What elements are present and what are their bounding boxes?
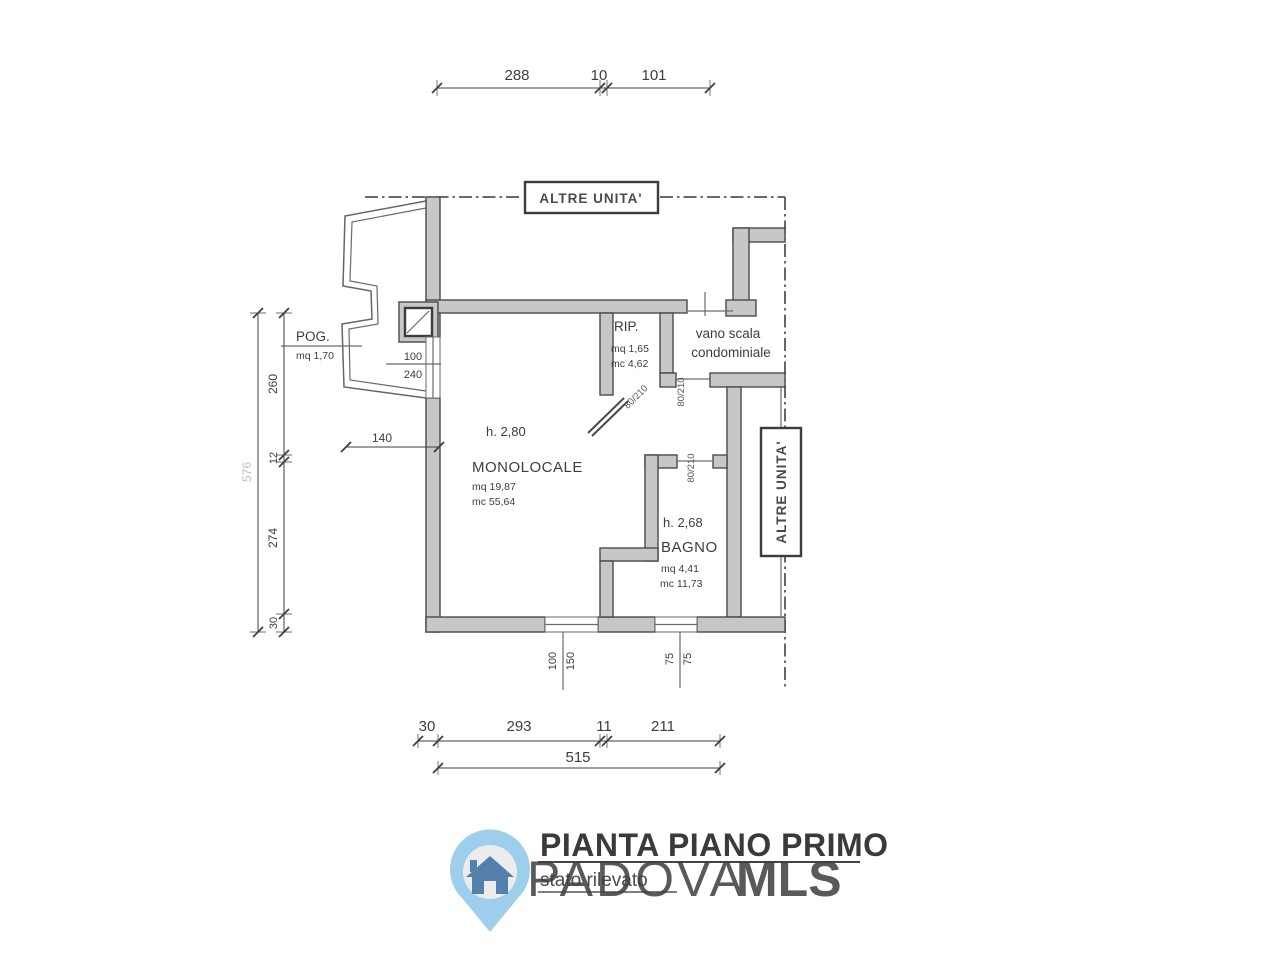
dim-left-12: 12 (268, 452, 280, 464)
dim-bottom-515: 515 (565, 749, 590, 766)
bagno-area: mq 4,41 (661, 563, 699, 575)
dim-bottom-293: 293 (506, 718, 531, 735)
dim-bottom-11: 11 (596, 718, 612, 735)
rip-door-size: 80/210 (622, 383, 650, 411)
dim-left-260: 260 (266, 374, 280, 394)
window-left-100-240 (426, 337, 440, 398)
room-vano-scala-labels: vano scala condominiale (691, 326, 771, 360)
bagno-name: BAGNO (661, 539, 718, 556)
altre-unita-top-label: ALTRE UNITA' (539, 191, 642, 206)
rip-name: RIP. (614, 319, 639, 334)
room-monolocale-labels: h. 2,80 MONOLOCALE mq 19,87 mc 55,64 (472, 424, 583, 508)
watermark-brand-light: PADOVA (527, 851, 746, 907)
entrance-door-size: 80/210 (676, 377, 687, 406)
monolocale-name: MONOLOCALE (472, 459, 583, 476)
bagno-height: h. 2,68 (663, 515, 703, 530)
window-left-width: 100 (404, 351, 422, 363)
room-rip-labels: RIP. mq 1,65 mc 4,62 (611, 319, 649, 370)
pog-area: mq 1,70 (296, 350, 334, 362)
dim-left-30: 30 (268, 617, 280, 629)
watermark-brand-bold: MLS (736, 851, 842, 907)
dim-top-288: 288 (504, 67, 529, 84)
room-bagno-labels: h. 2,68 BAGNO mq 4,41 mc 11,73 (660, 515, 718, 590)
monolocale-volume: mc 55,64 (472, 496, 515, 508)
rip-volume: mc 4,62 (611, 358, 649, 370)
window-br-width: 75 (664, 653, 676, 665)
monolocale-area: mq 19,87 (472, 481, 516, 493)
window-left-height: 240 (404, 369, 422, 381)
walls (426, 197, 785, 632)
dim-top-101: 101 (641, 67, 666, 84)
altre-unita-top-box: ALTRE UNITA' (525, 182, 658, 213)
dim-top-10: 10 (591, 67, 608, 84)
pog-name: POG. (296, 329, 330, 344)
dim-left-274: 274 (266, 528, 280, 548)
dim-bottom-30: 30 (419, 718, 436, 735)
floor-plan-document: 288 10 101 (0, 0, 1280, 960)
monolocale-height: h. 2,80 (486, 424, 526, 439)
top-dimension-chain: 288 10 101 (432, 67, 715, 96)
vano-scala-line2: condominiale (691, 345, 771, 360)
dim-140: 140 (372, 431, 392, 445)
bottom-dimension-total: 515 (433, 749, 725, 775)
dim-bottom-211: 211 (651, 718, 675, 735)
bagno-door-size: 80/210 (686, 453, 697, 482)
window-bottom-100-150 (545, 617, 598, 632)
altre-unita-right-box: ALTRE UNITA' (761, 387, 801, 617)
bottom-dimension-chain: 30 293 11 211 (413, 718, 725, 748)
rip-area: mq 1,65 (611, 343, 649, 355)
padovamls-logo-pin-icon (450, 829, 530, 932)
altre-unita-right-label: ALTRE UNITA' (774, 440, 789, 543)
window-bl-width: 100 (547, 652, 559, 670)
window-bottom-right-size-label: 75 75 (664, 632, 694, 688)
dim-left-total: 576 (240, 462, 254, 482)
bagno-volume: mc 11,73 (660, 578, 703, 590)
window-bottom-75-75 (655, 617, 697, 632)
window-bl-height: 150 (565, 652, 577, 670)
left-dimension-total: 576 (240, 308, 266, 637)
window-br-height: 75 (682, 653, 694, 665)
floor-plan-drawing: 288 10 101 (0, 0, 1280, 960)
pillar (399, 302, 438, 342)
left-dimension-chain: 260 12 274 30 (266, 308, 292, 637)
window-bottom-left-size-label: 100 150 (547, 632, 577, 690)
vano-scala-line1: vano scala (696, 326, 761, 341)
